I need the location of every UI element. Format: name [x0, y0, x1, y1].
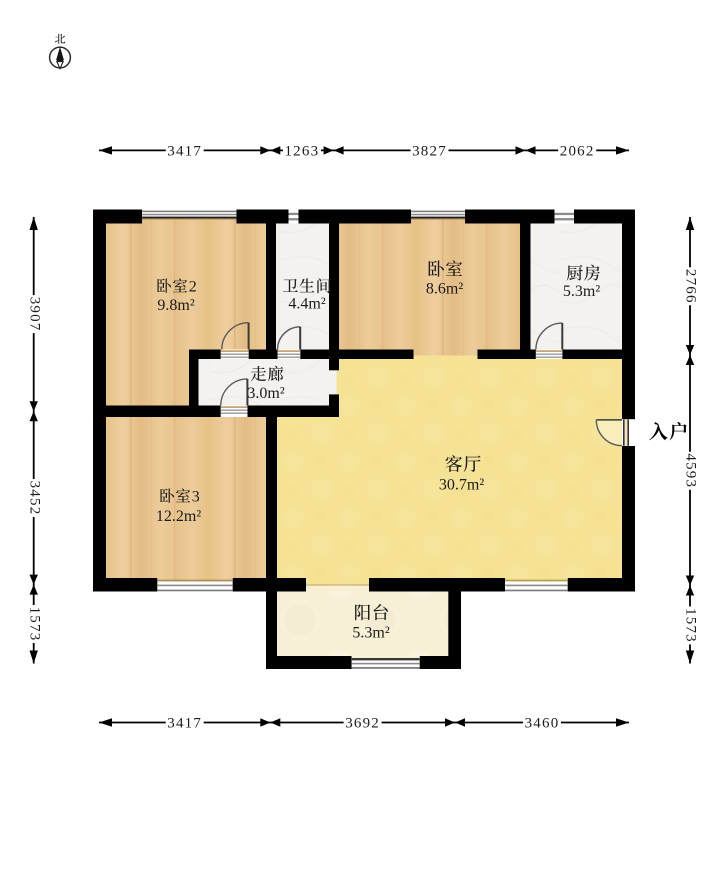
svg-text:1573: 1573 — [683, 608, 699, 643]
svg-text:3460: 3460 — [525, 715, 560, 731]
svg-text:2062: 2062 — [560, 143, 595, 159]
svg-text:4593: 4593 — [683, 453, 699, 488]
svg-text:12.2m²: 12.2m² — [156, 508, 201, 525]
svg-text:4.4m²: 4.4m² — [288, 295, 325, 312]
svg-text:5.3m²: 5.3m² — [563, 283, 600, 300]
svg-text:9.8m²: 9.8m² — [157, 297, 194, 314]
svg-text:1263: 1263 — [284, 143, 319, 159]
svg-text:3692: 3692 — [345, 715, 380, 731]
svg-text:5.3m²: 5.3m² — [352, 624, 389, 641]
svg-text:8.6m²: 8.6m² — [426, 280, 463, 297]
svg-text:3417: 3417 — [167, 143, 202, 159]
svg-text:1573: 1573 — [26, 607, 42, 642]
svg-text:3907: 3907 — [26, 297, 42, 332]
svg-text:3: 3 — [192, 489, 200, 506]
svg-text:3827: 3827 — [412, 143, 447, 159]
svg-text:30.7m²: 30.7m² — [439, 476, 484, 493]
svg-text:3452: 3452 — [26, 481, 42, 516]
svg-text:3417: 3417 — [167, 715, 202, 731]
svg-text:2: 2 — [189, 279, 197, 296]
svg-text:3.0m²: 3.0m² — [247, 385, 284, 402]
svg-text:2766: 2766 — [683, 269, 699, 304]
